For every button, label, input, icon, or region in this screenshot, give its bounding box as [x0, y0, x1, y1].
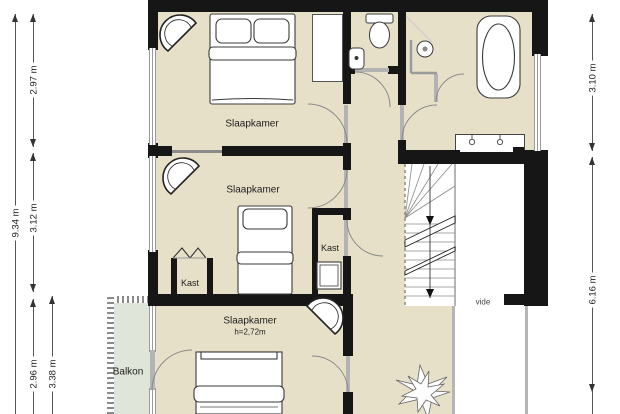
bedroom2-door-swing: [308, 170, 347, 208]
corner-chair-3: [307, 298, 343, 334]
closet1-bifold-doors: [173, 248, 206, 258]
dim-arrow: [589, 14, 595, 22]
corner-chair-1: [160, 15, 196, 51]
dim-label-left-seg3-inner: 3.38 m: [48, 356, 59, 391]
pillow: [216, 19, 251, 43]
toilet: [366, 14, 393, 48]
bedroom3-door-swing: [312, 356, 348, 392]
dim-label-left-seg1: 2.97 m: [29, 62, 40, 97]
bedroom2-label: Slaapkamer: [226, 185, 279, 196]
dim-arrow: [30, 139, 36, 147]
dim-label-right-seg1: 3.10 m: [588, 60, 599, 95]
hand-basin: [349, 48, 364, 69]
balcony-label: Balkon: [113, 367, 144, 378]
plant: [396, 365, 450, 414]
single-bed-2: [237, 206, 293, 294]
balcony-door-swing: [152, 350, 192, 390]
pillow: [243, 209, 287, 229]
dim-line-left-seg3-inner: [52, 296, 53, 414]
dim-arrow: [589, 157, 595, 165]
bedroom1-door-swing: [308, 104, 347, 143]
bedroom3-ceiling-height: h=2,72m: [234, 328, 265, 337]
dim-arrow: [589, 143, 595, 151]
dim-arrow: [30, 153, 36, 161]
stair-down-arrow: [426, 289, 434, 298]
door-swing-arcs: [152, 72, 464, 392]
bedroom1-label: Slaapkamer: [225, 119, 278, 130]
toilet-door-swing: [355, 72, 390, 107]
double-bed-1: [209, 14, 296, 104]
shower-door-swing: [436, 74, 464, 102]
blanket-fold: [194, 386, 284, 402]
corner-chair-2: [163, 158, 199, 194]
pillow: [254, 19, 289, 43]
shower: [406, 16, 437, 73]
bedroom3-label: Slaapkamer: [223, 316, 276, 327]
blanket-fold: [209, 47, 296, 60]
dim-arrow: [12, 14, 18, 22]
washer-unit: [317, 262, 341, 289]
headboard: [201, 352, 277, 359]
dim-label-right-seg2: 6.16 m: [588, 272, 599, 307]
floorplan-canvas: Slaapkamer Slaapkamer Slaapkamer h=2,72m…: [0, 0, 620, 414]
void-label: vide: [476, 298, 491, 307]
dim-label-left-total: 9.34 m: [11, 205, 22, 240]
bathroom-door-swing: [402, 105, 437, 140]
dim-arrow: [30, 299, 36, 307]
blanket-fold: [237, 252, 293, 264]
double-bed-3: [194, 352, 284, 414]
closet1-label: Kast: [181, 278, 199, 288]
dim-arrow: [30, 284, 36, 292]
furniture-layer: [0, 0, 620, 414]
dim-label-left-seg2: 3.12 m: [29, 200, 40, 235]
closet2-label: Kast: [321, 243, 339, 253]
vanity-faucets: [469, 135, 502, 145]
staircase: [405, 164, 455, 306]
closet2-door-swing: [347, 220, 383, 256]
dim-arrow: [30, 14, 36, 22]
bathtub: [477, 16, 520, 98]
dim-label-left-seg3: 2.96 m: [29, 356, 40, 391]
dim-arrow: [589, 384, 595, 392]
dim-arrow: [49, 296, 55, 304]
